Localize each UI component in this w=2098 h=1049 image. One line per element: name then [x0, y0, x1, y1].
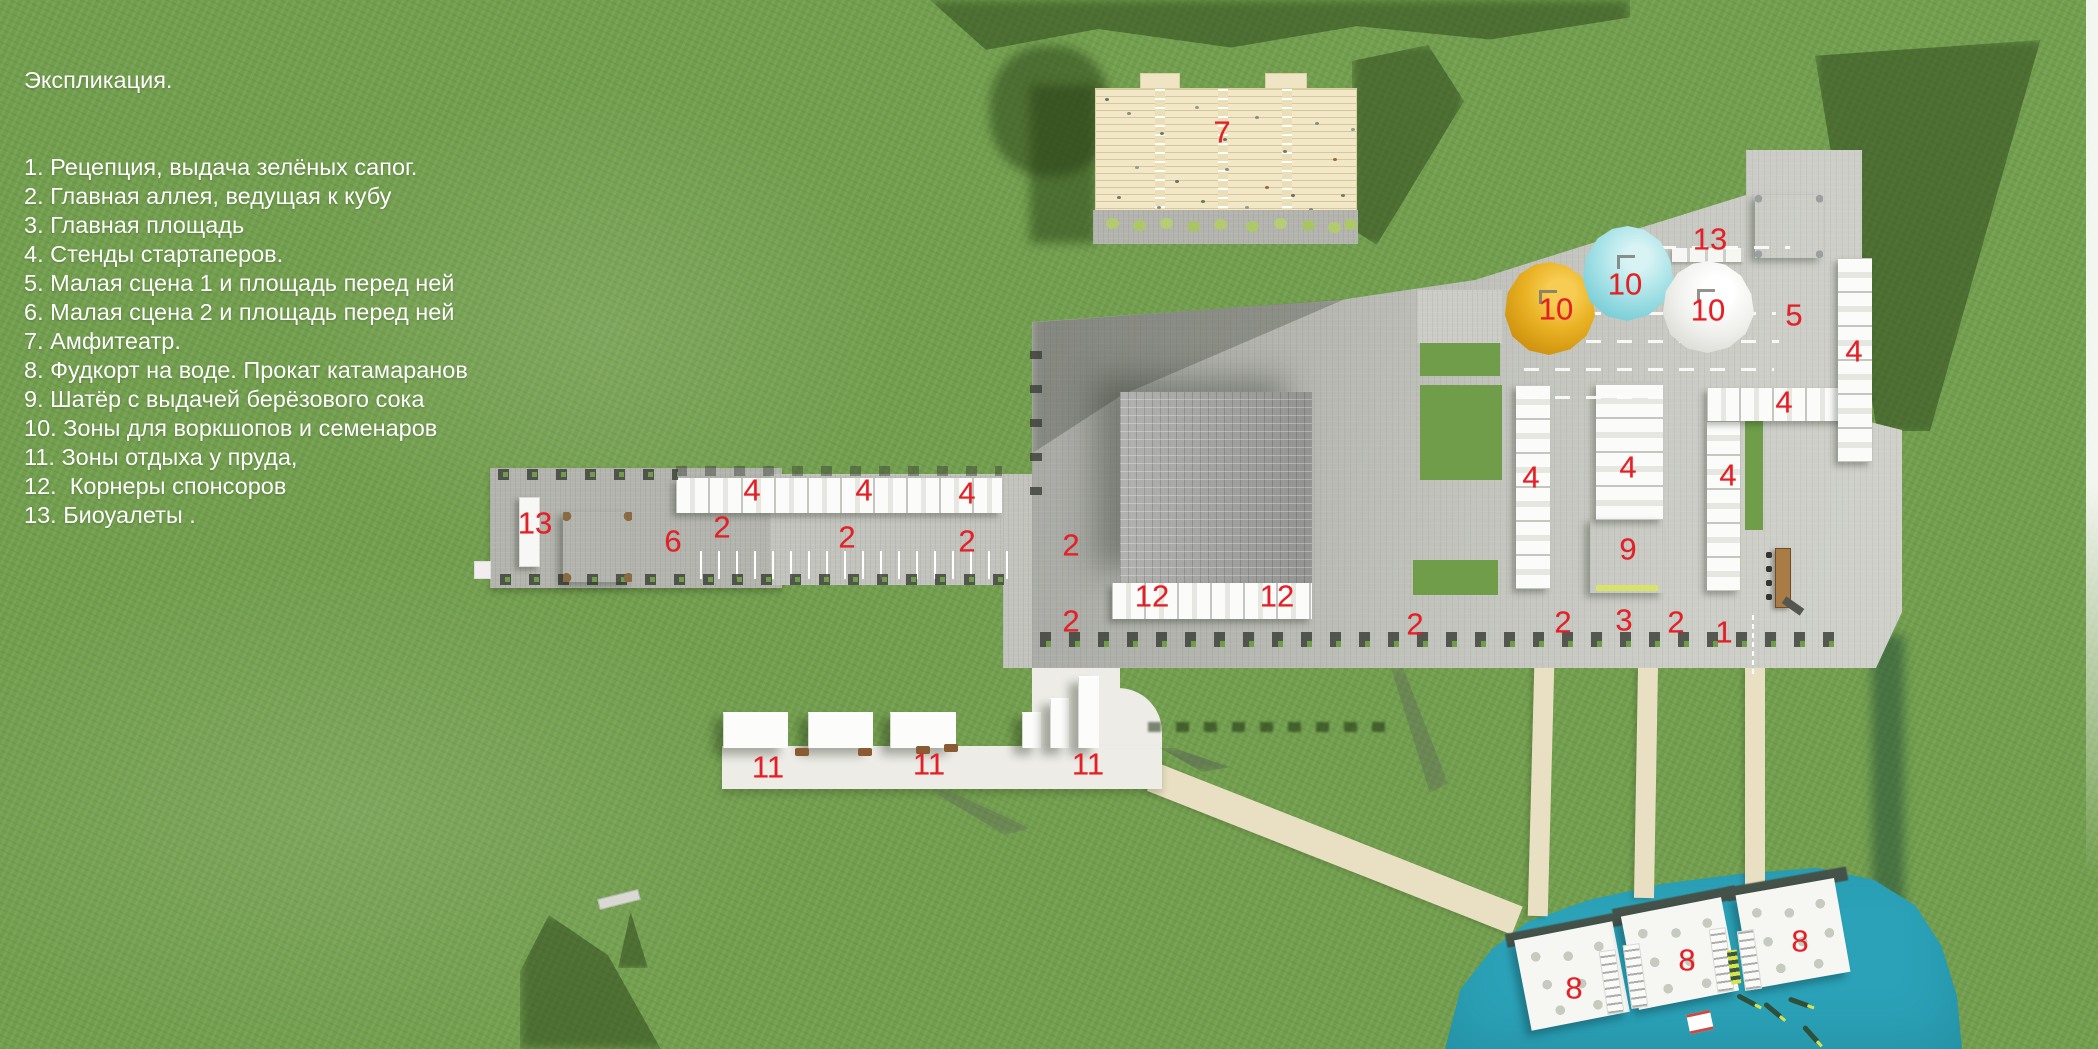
zone-label-4: 4 [958, 478, 975, 509]
legend-items: 1. Рецепция, выдача зелёных сапог.2. Гла… [24, 153, 468, 530]
zone-label-2: 2 [1406, 609, 1423, 640]
site-plan: 7131010105444449136242442221212223211111… [0, 0, 2098, 1049]
zone-label-10: 10 [1608, 269, 1642, 300]
zone-label-13: 13 [1693, 224, 1727, 255]
zone-label-2: 2 [838, 522, 855, 553]
legend-item: 8. Фудкорт на воде. Прокат катамаранов [24, 356, 468, 385]
zone-label-4: 4 [855, 475, 872, 506]
zone-label-8: 8 [1565, 973, 1582, 1004]
zone-label-2: 2 [1667, 607, 1684, 638]
zone-label-2: 2 [1062, 606, 1079, 637]
legend-item: 10. Зоны для воркшопов и семенаров [24, 414, 468, 443]
zone-label-10: 10 [1691, 295, 1725, 326]
zone-label-4: 4 [1775, 387, 1792, 418]
zone-label-10: 10 [1539, 294, 1573, 325]
legend-title: Экспликация. [24, 66, 468, 95]
legend-item: 6. Малая сцена 2 и площадь перед ней [24, 298, 468, 327]
legend-item: 13. Биоуалеты . [24, 501, 468, 530]
zone-label-3: 3 [1615, 605, 1632, 636]
zone-label-4: 4 [743, 475, 760, 506]
legend-item: 11. Зоны отдыха у пруда, [24, 443, 468, 472]
zone-label-1: 1 [1715, 617, 1732, 648]
zone-label-2: 2 [958, 526, 975, 557]
zone-label-6: 6 [664, 526, 681, 557]
zone-label-8: 8 [1678, 945, 1695, 976]
zone-label-2: 2 [713, 512, 730, 543]
legend-item: 9. Шатёр с выдачей берёзового сока [24, 385, 468, 414]
legend: Экспликация. 1. Рецепция, выдача зелёных… [24, 8, 468, 588]
zone-label-4: 4 [1619, 452, 1636, 483]
zone-label-2: 2 [1062, 530, 1079, 561]
legend-item: 2. Главная аллея, ведущая к кубу [24, 182, 468, 211]
legend-item: 12. Корнеры спонсоров [24, 472, 468, 501]
zone-label-9: 9 [1619, 534, 1636, 565]
legend-item: 5. Малая сцена 1 и площадь перед ней [24, 269, 468, 298]
legend-item: 3. Главная площадь [24, 211, 468, 240]
zone-label-13: 13 [518, 508, 552, 539]
zone-label-11: 11 [752, 752, 784, 783]
zone-label-12: 12 [1260, 581, 1294, 612]
zone-label-5: 5 [1785, 300, 1802, 331]
zone-label-11: 11 [913, 749, 945, 780]
legend-item: 4. Стенды стартаперов. [24, 240, 468, 269]
legend-item: 1. Рецепция, выдача зелёных сапог. [24, 153, 468, 182]
zone-label-4: 4 [1522, 462, 1539, 493]
zone-label-7: 7 [1213, 117, 1230, 148]
zone-label-4: 4 [1845, 336, 1862, 367]
zone-label-4: 4 [1719, 460, 1736, 491]
legend-item: 7. Амфитеатр. [24, 327, 468, 356]
zone-label-2: 2 [1554, 607, 1571, 638]
zone-label-12: 12 [1135, 581, 1169, 612]
zone-label-8: 8 [1791, 926, 1808, 957]
zone-label-11: 11 [1072, 749, 1104, 780]
